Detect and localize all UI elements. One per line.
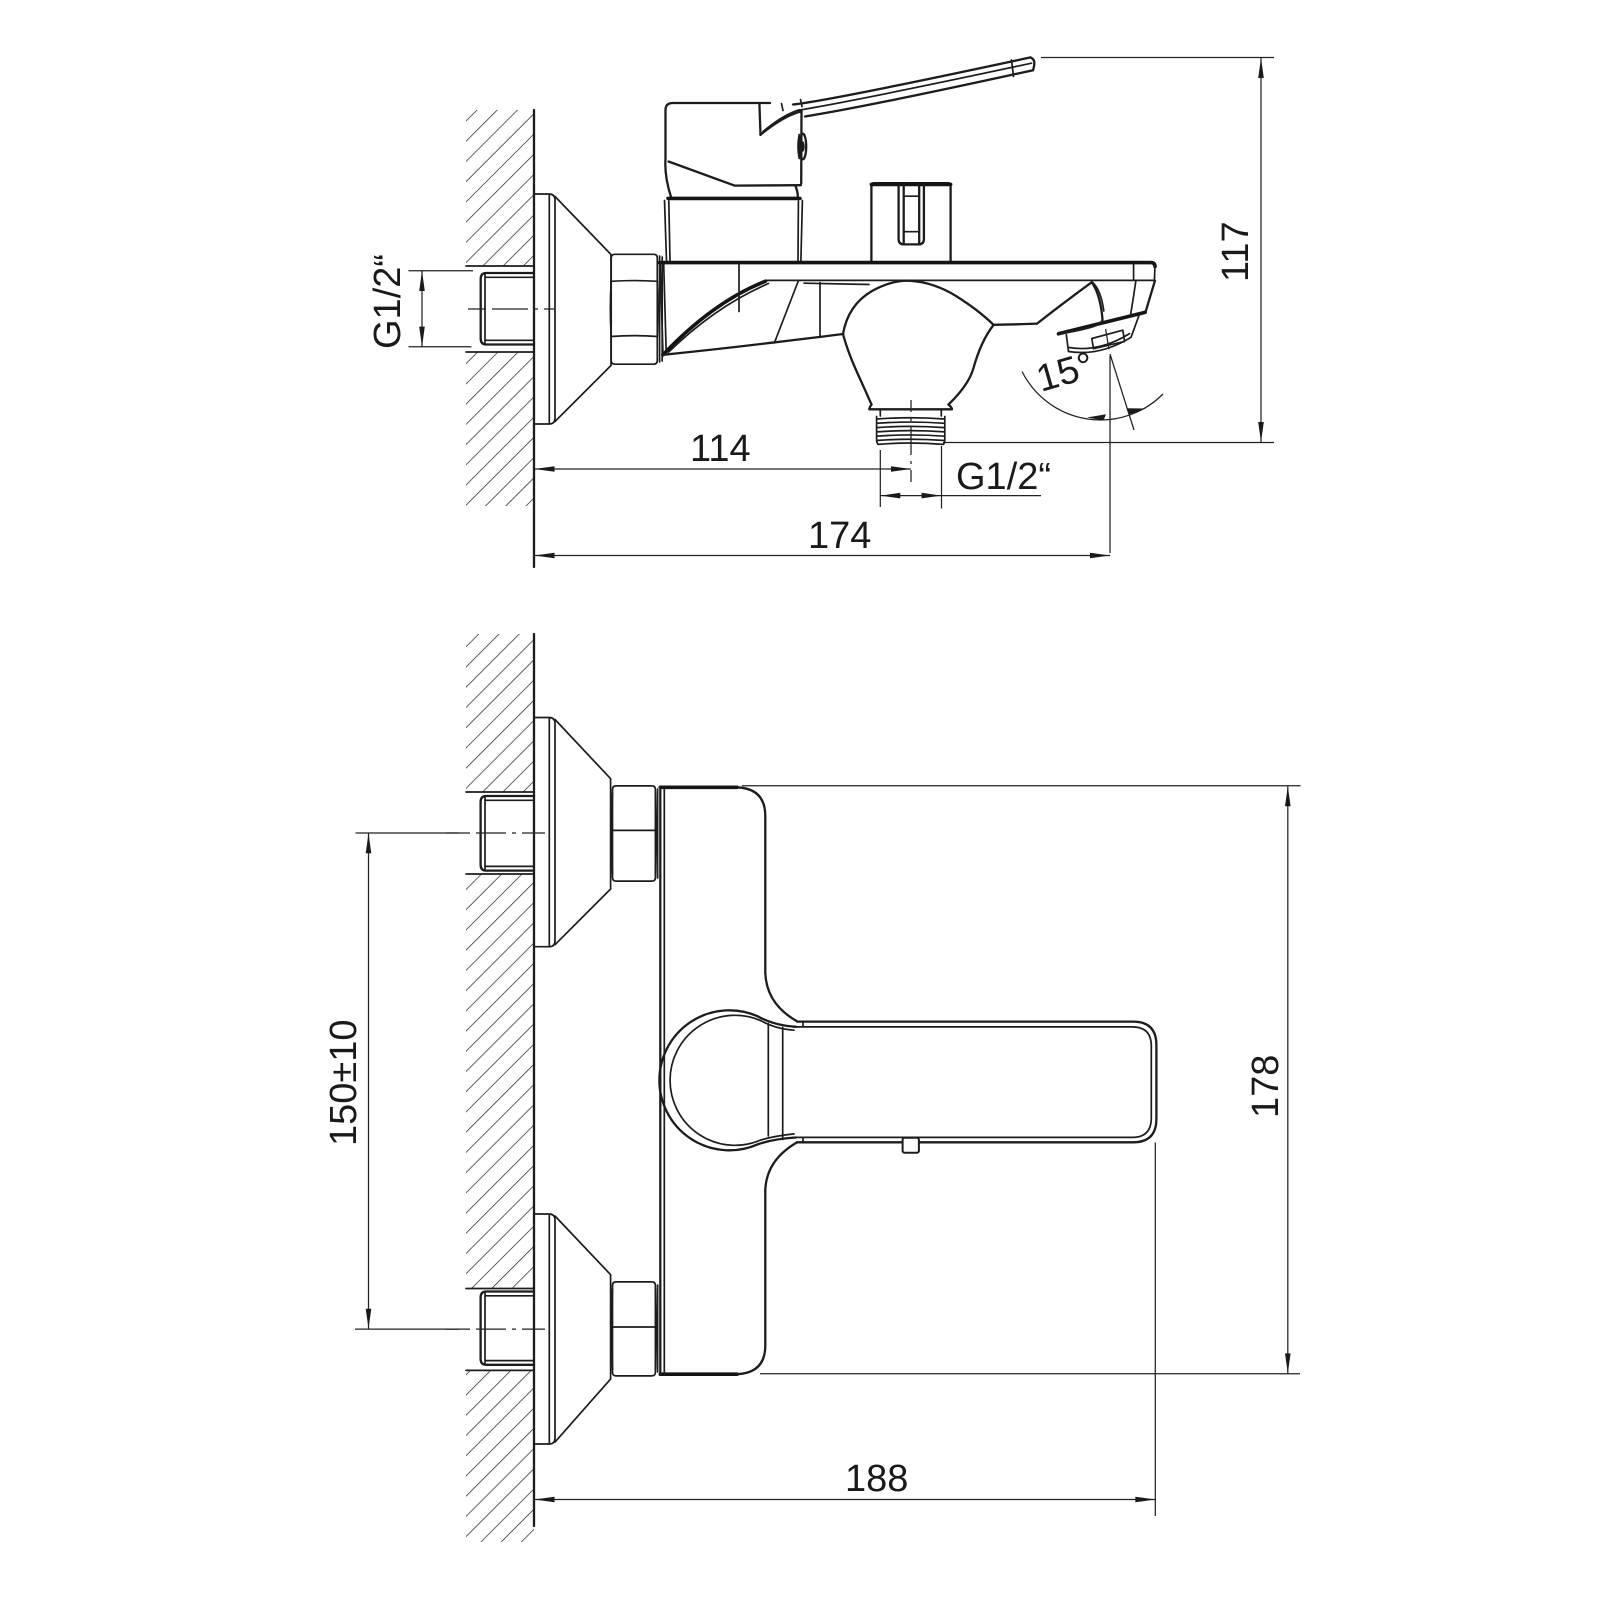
svg-text:174: 174: [808, 515, 871, 557]
svg-text:188: 188: [845, 1458, 908, 1500]
svg-text:G1/2“: G1/2“: [956, 456, 1051, 498]
svg-text:178: 178: [1245, 1055, 1287, 1118]
svg-text:117: 117: [1215, 221, 1257, 282]
svg-text:G1/2“: G1/2“: [367, 254, 409, 349]
svg-text:114: 114: [690, 428, 751, 470]
svg-text:150±10: 150±10: [323, 1019, 365, 1146]
